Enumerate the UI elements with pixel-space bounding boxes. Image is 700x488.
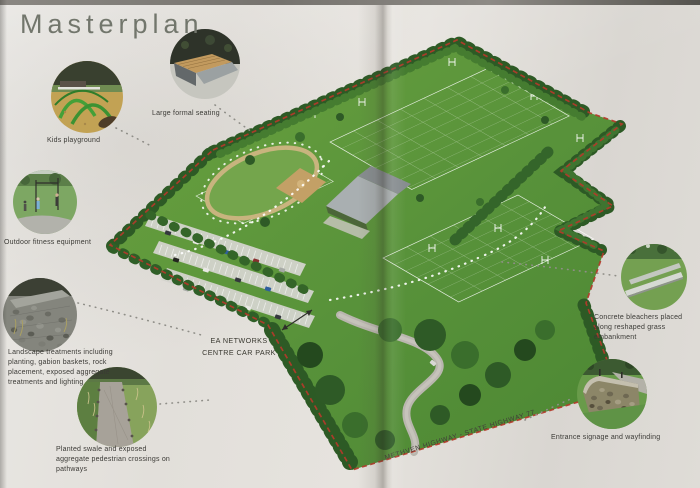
label-car-park-line1: EA NETWORKS bbox=[193, 335, 285, 347]
label-concrete-bleachers: Concrete bleachers placed along reshaped… bbox=[594, 313, 698, 343]
site-plan bbox=[110, 40, 622, 470]
label-car-park-line2: CENTRE CAR PARK bbox=[193, 347, 285, 359]
leader-kids-playground bbox=[116, 128, 153, 147]
photo-gabion-baskets bbox=[3, 278, 77, 352]
label-car-park: EA NETWORKS CENTRE CAR PARK bbox=[193, 335, 285, 358]
leader-landscape-treatments bbox=[78, 303, 205, 336]
photo-concrete-bleachers bbox=[621, 244, 687, 310]
masterplan-graphic bbox=[0, 0, 700, 488]
leader-large-formal-seating bbox=[215, 105, 252, 132]
label-large-formal-seating: Large formal seating bbox=[152, 109, 220, 119]
label-landscape-treatments: Landscape treatments including planting,… bbox=[8, 348, 114, 389]
photo-kids-playground bbox=[51, 61, 123, 133]
page-title: Masterplan bbox=[20, 9, 204, 40]
label-outdoor-fitness-equipment: Outdoor fitness equipment bbox=[4, 238, 91, 248]
masterplan-page: { "title": "Masterplan", "map": { "car_p… bbox=[0, 0, 700, 488]
photo-entrance-signage bbox=[577, 359, 647, 429]
label-kids-playground: Kids playground bbox=[47, 136, 100, 146]
label-planted-swale: Planted swale and exposed aggregate pede… bbox=[56, 445, 180, 475]
label-entrance-signage: Entrance signage and wayfinding bbox=[551, 433, 660, 443]
photo-outdoor-fitness bbox=[13, 170, 77, 234]
leader-planted-swale bbox=[160, 400, 210, 404]
